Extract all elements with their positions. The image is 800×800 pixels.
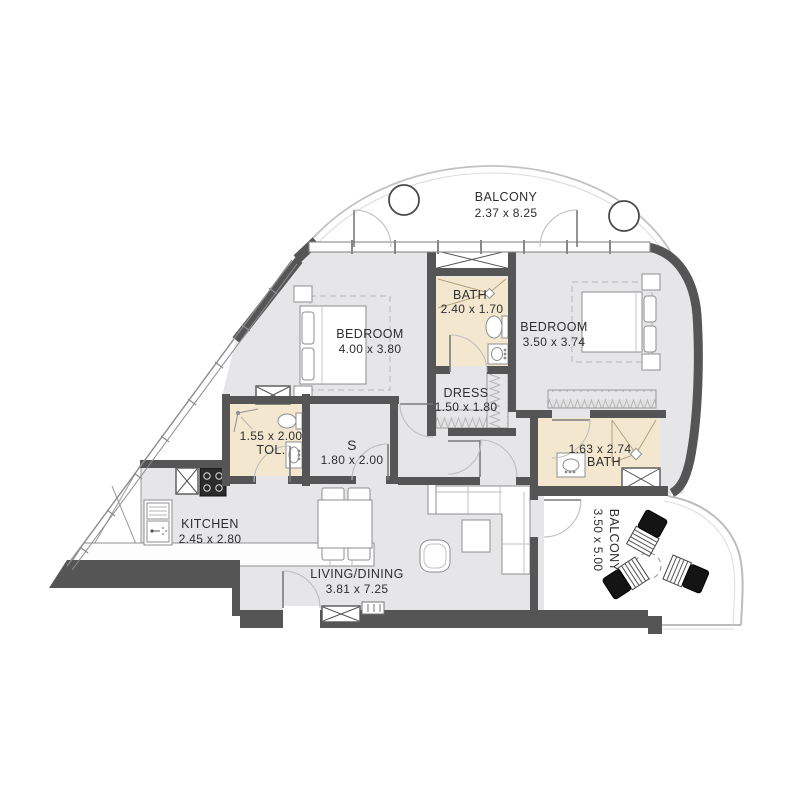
bedroom-right-dims: 3.50 x 3.74 — [523, 335, 586, 349]
bath-center-dims: 2.40 x 1.70 — [441, 302, 504, 316]
lounge-chair — [627, 509, 669, 557]
dining-chair — [322, 488, 344, 501]
bath-center-name: BATH — [453, 288, 487, 302]
dining-table — [318, 500, 372, 548]
lounge-chair — [663, 555, 710, 595]
sink — [563, 459, 579, 471]
balcony-top-dims: 2.37 x 8.25 — [475, 206, 538, 220]
bedroom-right-name: BEDROOM — [520, 320, 587, 334]
toilet-tank — [502, 316, 508, 338]
toilet-dims: 1.55 x 2.00 — [240, 429, 303, 443]
dress-dims: 1.50 x 1.80 — [435, 400, 498, 414]
floor-plan-page: BALCONY 2.37 x 8.25 BEDROOM 4.00 x 3.80 … — [0, 0, 800, 800]
nightstand — [294, 286, 312, 302]
kitchen-name: KITCHEN — [181, 517, 239, 531]
balcony-round-table — [609, 201, 639, 231]
mattress — [582, 292, 642, 352]
toilet-name: TOL. — [256, 443, 285, 457]
nightstand — [642, 274, 660, 290]
toilet — [278, 414, 296, 428]
pillow — [644, 326, 656, 352]
pillow — [302, 312, 314, 344]
pillow — [302, 348, 314, 380]
balcony-right-dims: 3.50 x 5.00 — [591, 509, 605, 572]
sofa-armrest — [428, 484, 436, 514]
dining-chair — [348, 488, 370, 501]
balcony-top-name: BALCONY — [475, 190, 538, 204]
bath-right-dims: 1.63 x 2.74 — [569, 442, 632, 456]
balcony-right-name: BALCONY — [607, 509, 621, 572]
toilet-tank — [296, 413, 302, 429]
side-table — [462, 520, 490, 552]
dining-chair — [348, 547, 370, 560]
store-dims: 1.80 x 2.00 — [321, 453, 384, 467]
dress-name: DRESS — [443, 386, 488, 400]
bedroom-left-dims: 4.00 x 3.80 — [339, 342, 402, 356]
bedroom-left-name: BEDROOM — [336, 327, 403, 341]
balcony-right — [601, 496, 742, 629]
wardrobe-bedroom-right — [548, 390, 656, 408]
store-name: S — [347, 437, 357, 453]
toilet — [486, 316, 502, 338]
living-dims: 3.81 x 7.25 — [326, 582, 389, 596]
kitchen-dims: 2.45 x 2.80 — [179, 532, 242, 546]
meter-box — [362, 602, 384, 614]
nightstand — [642, 354, 660, 370]
entry-opening — [283, 606, 320, 630]
sink — [492, 348, 503, 361]
bath-right-name: BATH — [587, 455, 621, 469]
window-band-top — [309, 240, 650, 254]
living-name: LIVING/DINING — [310, 567, 403, 581]
floor-plan-drawing: BALCONY 2.37 x 8.25 BEDROOM 4.00 x 3.80 … — [0, 0, 800, 800]
coffee-table-top — [424, 544, 446, 568]
balcony-round-table — [389, 185, 419, 215]
dining-chair — [322, 547, 344, 560]
pillow — [644, 296, 656, 322]
